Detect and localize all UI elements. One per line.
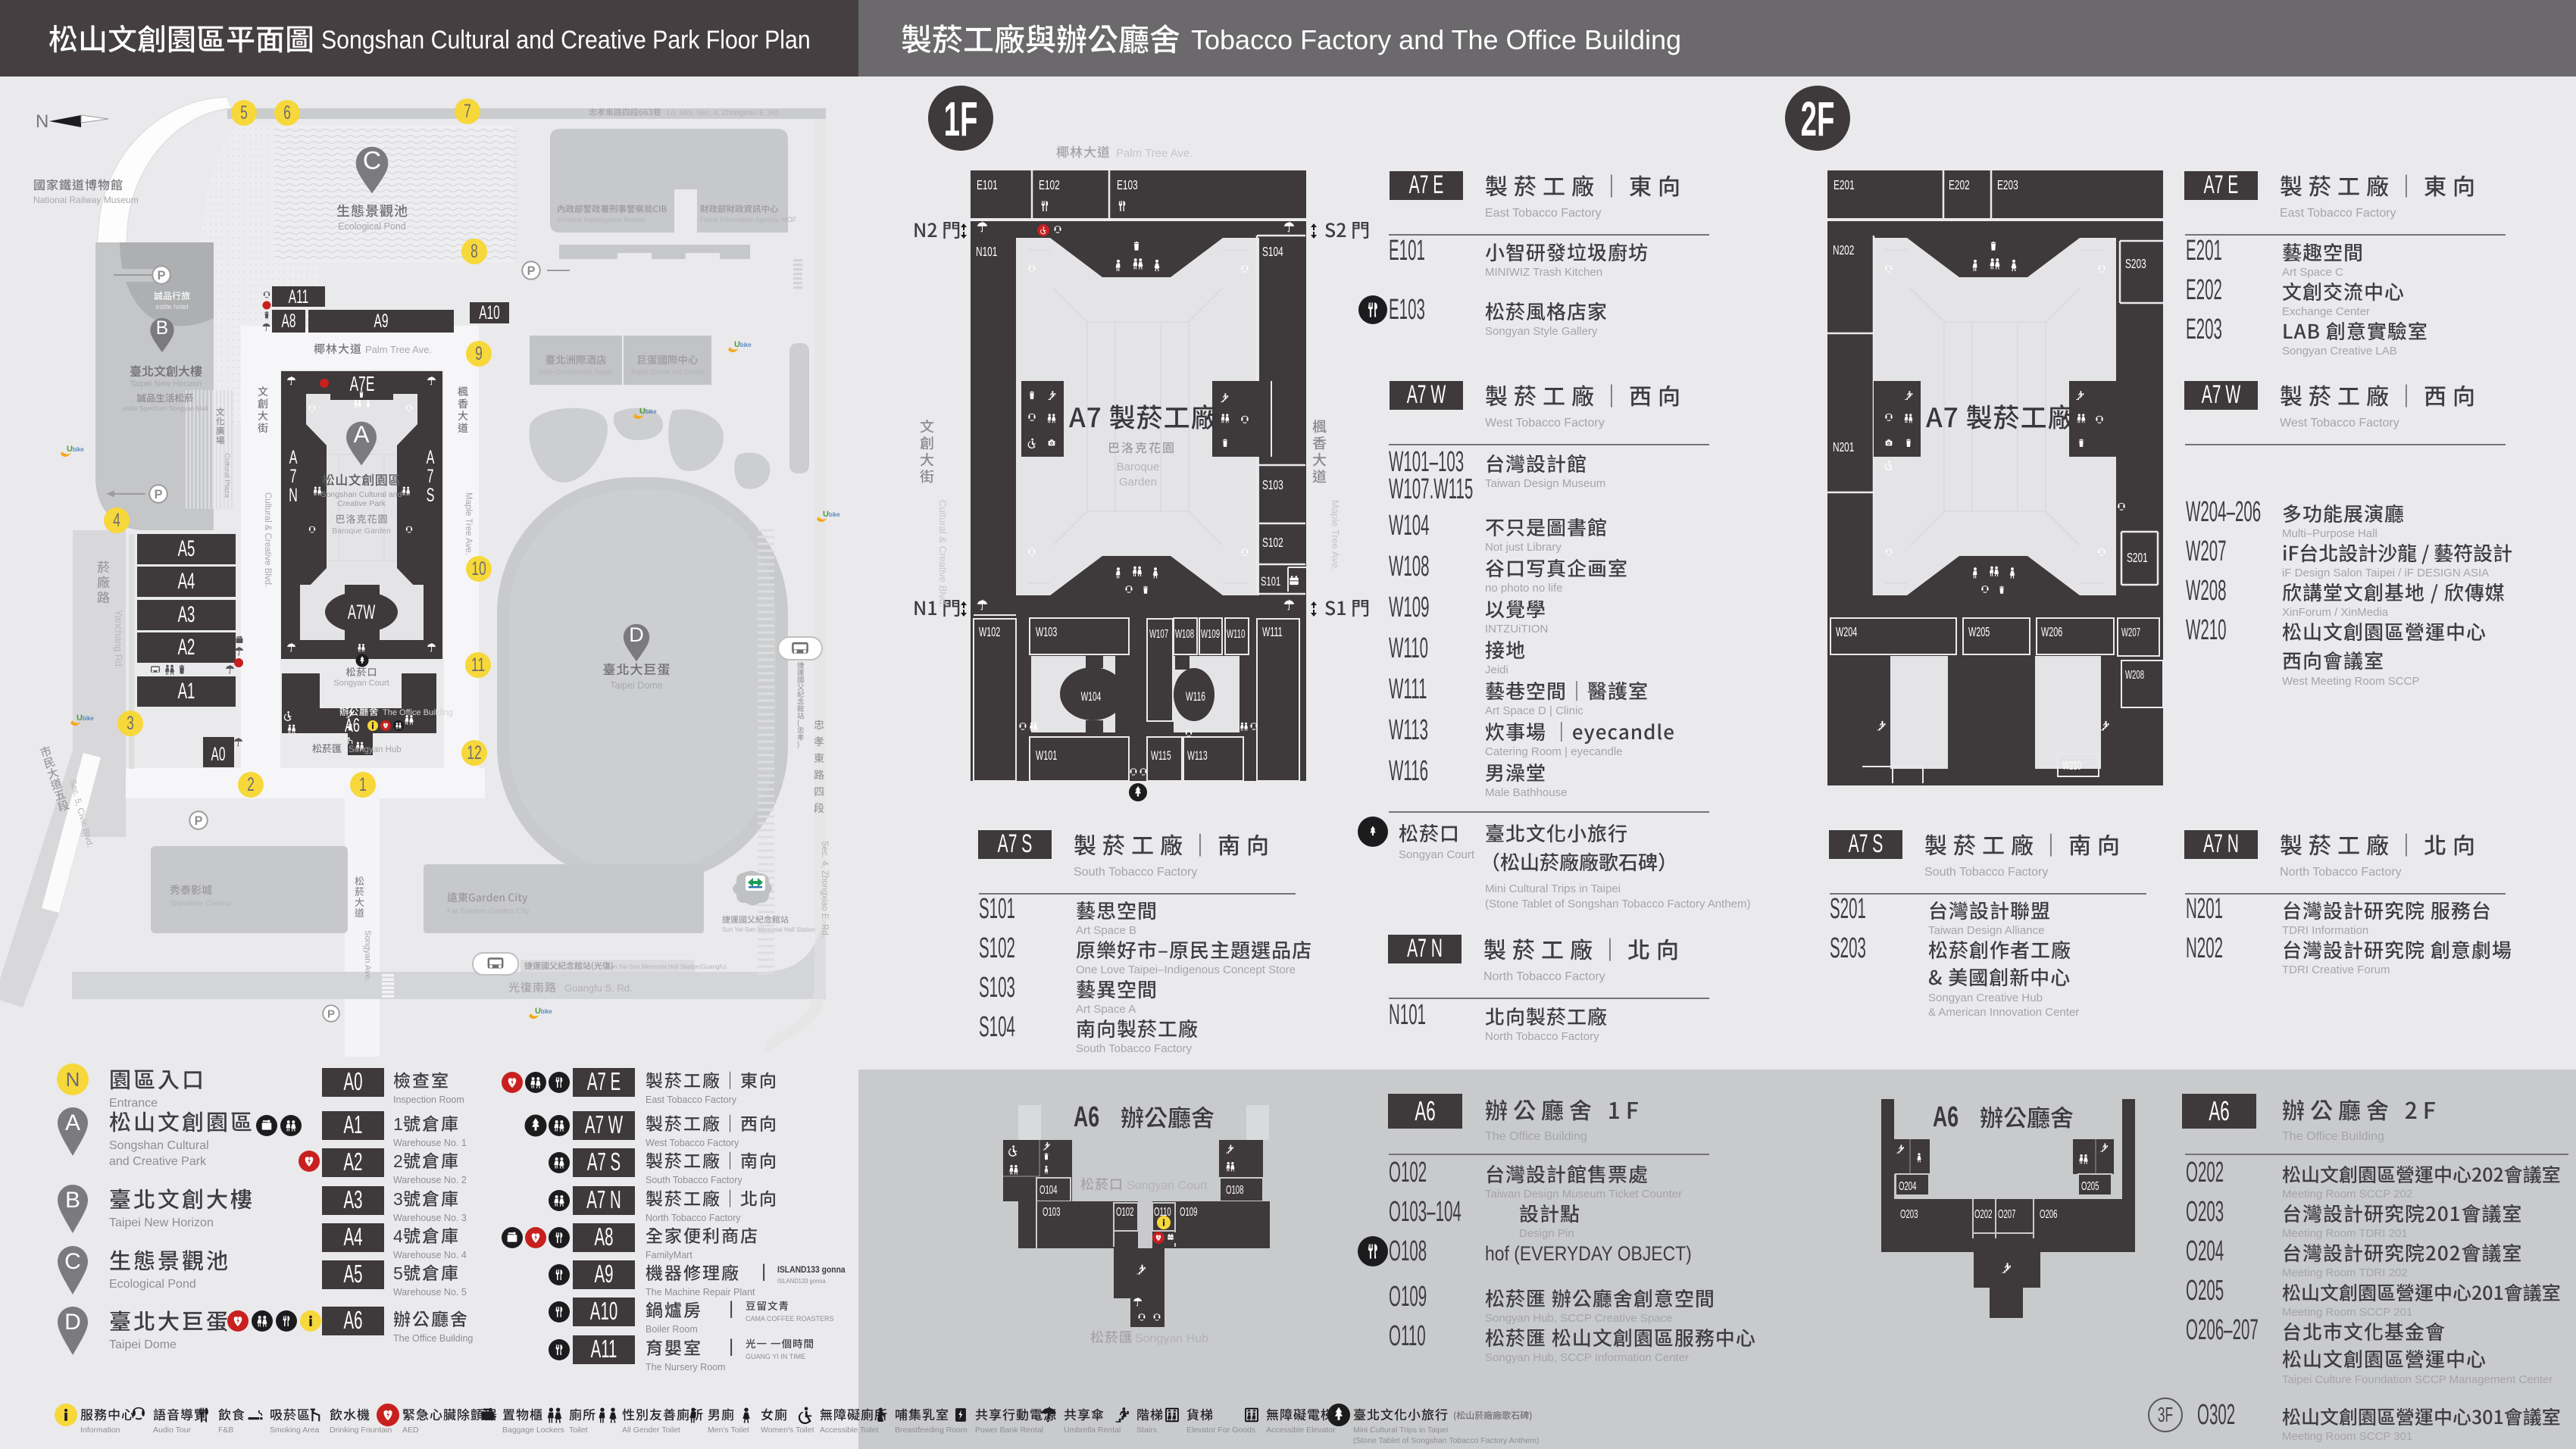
svg-text:Accessible Toilet: Accessible Toilet	[820, 1426, 879, 1435]
svg-text:S: S	[427, 486, 435, 506]
svg-text:A10: A10	[479, 302, 500, 323]
svg-text:West Tobacco Factory: West Tobacco Factory	[2280, 417, 2399, 429]
svg-text:E201: E201	[1834, 178, 1855, 193]
svg-text:2: 2	[393, 1151, 403, 1171]
svg-text:Women's Toilet: Women's Toilet	[761, 1426, 814, 1435]
svg-text:E103: E103	[1389, 293, 1425, 325]
svg-text:Breastfeeding Room: Breastfeeding Room	[895, 1426, 968, 1435]
svg-text:O205: O205	[2186, 1274, 2224, 1306]
svg-text:Drinking Fountain: Drinking Fountain	[330, 1426, 392, 1435]
svg-text:E201: E201	[2186, 234, 2222, 266]
svg-text:Warehouse No. 2: Warehouse No. 2	[393, 1175, 467, 1185]
svg-text:West Meeting Room SCCP: West Meeting Room SCCP	[2282, 675, 2419, 688]
svg-text:A7 S: A7 S	[587, 1148, 621, 1176]
svg-text:Warehouse No. 3: Warehouse No. 3	[393, 1213, 467, 1223]
svg-text:A3: A3	[343, 1185, 362, 1213]
svg-text:N101: N101	[976, 245, 997, 260]
svg-text:3: 3	[127, 712, 134, 734]
svg-text:W113: W113	[1187, 748, 1208, 762]
svg-text:A7 E: A7 E	[1409, 170, 1444, 198]
svg-text:W208: W208	[2125, 667, 2144, 681]
svg-text:F&B: F&B	[218, 1426, 233, 1435]
svg-text:A11: A11	[591, 1335, 617, 1363]
svg-text:Taiwan Design Alliance: Taiwan Design Alliance	[1928, 924, 2044, 937]
svg-text:A7 N: A7 N	[1407, 933, 1443, 962]
svg-text:N: N	[289, 486, 298, 506]
svg-text:Songyan Hub, SCCP Creative Spa: Songyan Hub, SCCP Creative Space	[1485, 1312, 1672, 1325]
svg-text:Taipei New Horizon: Taipei New Horizon	[109, 1216, 214, 1229]
svg-text:hof (EVERYDAY OBJECT): hof (EVERYDAY OBJECT)	[1485, 1242, 1692, 1265]
svg-text:South Tobacco Factory: South Tobacco Factory	[1076, 1042, 1193, 1055]
svg-text:O205: O205	[2081, 1179, 2099, 1192]
svg-text:8: 8	[470, 240, 478, 262]
svg-text:A9: A9	[594, 1260, 613, 1288]
svg-text:Garden: Garden	[1119, 476, 1157, 489]
svg-text:Inspection Room: Inspection Room	[393, 1095, 464, 1105]
svg-text:1F: 1F	[944, 92, 978, 147]
svg-text:3F: 3F	[2158, 1403, 2173, 1426]
svg-text:W207: W207	[2121, 625, 2140, 639]
svg-text:W107.W115: W107.W115	[1389, 473, 1473, 504]
svg-text:Taipei Dome: Taipei Dome	[610, 680, 663, 691]
svg-text:A4: A4	[343, 1223, 362, 1251]
svg-text:Sec. 4, Zhongxiao E. Rd.: Sec. 4, Zhongxiao E. Rd.	[820, 841, 829, 938]
svg-text:Songyan Court: Songyan Court	[333, 679, 389, 688]
svg-text:W109: W109	[1201, 626, 1220, 640]
svg-text:Far Eastern Garden City: Far Eastern Garden City	[447, 907, 529, 916]
svg-text:Songyan Hub, SCCP Information: Songyan Hub, SCCP Information Center	[1485, 1351, 1689, 1364]
svg-text:A6: A6	[1074, 1100, 1099, 1132]
svg-text:W116: W116	[1186, 690, 1205, 704]
svg-text:North Tobacco Factory: North Tobacco Factory	[1483, 970, 1605, 983]
svg-text:A7 E: A7 E	[587, 1067, 621, 1095]
svg-text:North Tobacco Factory: North Tobacco Factory	[2280, 866, 2402, 879]
svg-text:S101: S101	[979, 892, 1015, 924]
svg-text:S201: S201	[1830, 892, 1866, 924]
svg-text:A: A	[427, 448, 436, 468]
svg-text:Songshan Cultural and: Songshan Cultural and	[321, 490, 402, 499]
svg-text:N: N	[66, 1068, 80, 1091]
svg-text:O203: O203	[1900, 1207, 1918, 1220]
svg-text:S104: S104	[979, 1010, 1015, 1042]
svg-text:N: N	[36, 111, 48, 132]
svg-text:Meeting Room TDRI 202: Meeting Room TDRI 202	[2282, 1266, 2408, 1279]
svg-text:S103: S103	[979, 971, 1015, 1003]
svg-text:Mini Cultural Trips in Taipei: Mini Cultural Trips in Taipei	[1353, 1426, 1448, 1435]
svg-text:E203: E203	[1997, 178, 2018, 193]
svg-text:E102: E102	[1039, 178, 1060, 193]
svg-text:ISLAND133 gonna: ISLAND133 gonna	[777, 1266, 846, 1276]
svg-text:CAMA COFFEE ROASTERS: CAMA COFFEE ROASTERS	[746, 1315, 834, 1323]
svg-text:W206: W206	[2041, 626, 2062, 640]
svg-text:A1: A1	[343, 1110, 362, 1138]
svg-text:W104: W104	[1389, 509, 1430, 541]
svg-text:A7W: A7W	[348, 601, 376, 623]
svg-text:Sec. 5, Civic Blvd.: Sec. 5, Civic Blvd.	[67, 779, 95, 849]
svg-text:2F: 2F	[1801, 92, 1835, 147]
svg-text:and Creative Park: and Creative Park	[109, 1155, 207, 1168]
svg-text:A6: A6	[345, 716, 360, 736]
svg-text:A6: A6	[343, 1306, 362, 1334]
svg-text:Smoking Area: Smoking Area	[270, 1426, 320, 1435]
svg-text:Boiler Room: Boiler Room	[646, 1324, 698, 1335]
svg-text:Meeting Room TDRI 201: Meeting Room TDRI 201	[2282, 1227, 2408, 1240]
svg-text:The Office Building: The Office Building	[393, 1333, 473, 1344]
svg-text:11: 11	[471, 654, 485, 676]
svg-text:O109: O109	[1389, 1280, 1427, 1312]
svg-text:MINIWIZ Trash Kitchen: MINIWIZ Trash Kitchen	[1485, 266, 1602, 279]
svg-text:Songshan Cultural: Songshan Cultural	[109, 1139, 209, 1152]
svg-text:W204: W204	[1836, 626, 1857, 640]
svg-text:A0: A0	[343, 1067, 362, 1095]
svg-text:W207: W207	[2186, 535, 2227, 567]
svg-text:Power Bank Rental: Power Bank Rental	[975, 1426, 1043, 1435]
svg-text:O206–207: O206–207	[2186, 1313, 2259, 1345]
svg-text:Taiwan Design Museum Ticket Co: Taiwan Design Museum Ticket Counter	[1485, 1188, 1682, 1201]
svg-text:Warehouse No. 1: Warehouse No. 1	[393, 1138, 467, 1148]
svg-text:Sun Yat-Sen Memorial Hall Stat: Sun Yat-Sen Memorial Hall Station(Guangf…	[606, 963, 727, 970]
svg-text:Fiscal Information Agency, MOF: Fiscal Information Agency, MOF	[700, 216, 797, 223]
svg-text:7: 7	[464, 100, 471, 122]
svg-text:Ln. 663, Sec. 4, Zhongxiao E.: Ln. 663, Sec. 4, Zhongxiao E. Rd.	[667, 109, 780, 117]
svg-text:A8: A8	[594, 1223, 613, 1251]
svg-text:FamilyMart: FamilyMart	[646, 1250, 692, 1260]
svg-text:A7E: A7E	[350, 372, 375, 395]
svg-text:North Tobacco Factory: North Tobacco Factory	[1485, 1030, 1599, 1043]
svg-text:5: 5	[393, 1263, 403, 1283]
svg-text:W115: W115	[1151, 748, 1171, 762]
svg-text:W111: W111	[1262, 626, 1283, 640]
svg-text:S203: S203	[2125, 257, 2146, 272]
svg-text:TDRI Creative Forum: TDRI Creative Forum	[2282, 963, 2390, 976]
svg-text:E101: E101	[977, 178, 998, 193]
svg-text:Ecological Pond: Ecological Pond	[109, 1278, 196, 1291]
svg-text:7: 7	[289, 467, 296, 487]
svg-text:W110: W110	[1389, 632, 1428, 664]
svg-text:4: 4	[113, 509, 120, 531]
svg-text:A7 S: A7 S	[998, 829, 1033, 857]
svg-text:The Office Building: The Office Building	[383, 708, 453, 717]
svg-text:W205: W205	[1968, 626, 1990, 640]
svg-text:The Office Building: The Office Building	[2282, 1130, 2384, 1143]
svg-text:Audio Tour: Audio Tour	[153, 1426, 192, 1435]
svg-text:W210: W210	[2062, 758, 2081, 772]
svg-text:1: 1	[359, 773, 367, 795]
svg-text:A3: A3	[178, 602, 195, 628]
svg-text:West Tobacco Factory: West Tobacco Factory	[1485, 417, 1605, 429]
svg-text:N202: N202	[1833, 243, 1854, 258]
svg-text:Men's Toilet: Men's Toilet	[708, 1426, 749, 1435]
svg-text:S201: S201	[2127, 551, 2148, 566]
svg-text:O109: O109	[1180, 1204, 1197, 1218]
svg-text:Warehouse No. 5: Warehouse No. 5	[393, 1287, 467, 1298]
svg-text:C: C	[64, 1249, 81, 1274]
svg-text:Songyan Ave.: Songyan Ave.	[363, 930, 372, 982]
svg-text:eslite Spectrum Songyan Mall: eslite Spectrum Songyan Mall	[123, 404, 208, 412]
svg-text:Catering Room | eyecandle: Catering Room | eyecandle	[1485, 745, 1623, 758]
svg-text:|: |	[729, 1298, 733, 1319]
svg-text:Tobacco Factory and The Office: Tobacco Factory and The Office Building	[1191, 24, 1681, 55]
svg-text:S103: S103	[1262, 478, 1283, 493]
svg-text:iF Design Salon Taipei / iF DE: iF Design Salon Taipei / iF DESIGN ASIA	[2282, 567, 2489, 579]
svg-text:Yanchang Rd.: Yanchang Rd.	[113, 610, 123, 669]
svg-text:S101: S101	[1261, 575, 1280, 589]
svg-text:Ecological Pond: Ecological Pond	[338, 221, 406, 232]
svg-text:Warehouse No. 4: Warehouse No. 4	[393, 1250, 467, 1260]
svg-text:N202: N202	[2186, 932, 2223, 963]
svg-text:The Nursery Room: The Nursery Room	[646, 1362, 726, 1372]
svg-text:O108: O108	[1389, 1235, 1427, 1266]
svg-text:Entrance: Entrance	[109, 1097, 158, 1110]
svg-text:C: C	[363, 147, 381, 175]
svg-text:Meeting Room SCCP 202: Meeting Room SCCP 202	[2282, 1188, 2412, 1201]
svg-text:Umbrella Rental: Umbrella Rental	[1064, 1426, 1121, 1435]
svg-text:N101: N101	[1389, 998, 1426, 1030]
svg-text:W116: W116	[1389, 754, 1428, 786]
svg-text:D: D	[64, 1310, 81, 1335]
svg-text:Songyan Court: Songyan Court	[1127, 1179, 1208, 1192]
svg-text:eslite hotel: eslite hotel	[155, 303, 188, 311]
svg-text:One Love Taipei–Indigenous Con: One Love Taipei–Indigenous Concept Store	[1076, 963, 1296, 976]
svg-text:O102: O102	[1389, 1156, 1427, 1188]
svg-text:S102: S102	[979, 932, 1015, 963]
svg-text:O207: O207	[1998, 1207, 2015, 1220]
svg-text:A7 W: A7 W	[1407, 379, 1446, 408]
svg-text:O302: O302	[2197, 1398, 2235, 1430]
svg-text:W108: W108	[1175, 626, 1194, 640]
svg-text:A6: A6	[1933, 1100, 1959, 1132]
svg-text:A1: A1	[178, 679, 195, 704]
svg-text:East Tobacco Factory: East Tobacco Factory	[646, 1095, 737, 1105]
svg-text:A5: A5	[178, 536, 195, 562]
svg-text:W110: W110	[1227, 626, 1245, 640]
svg-text:Palm Tree Ave.: Palm Tree Ave.	[1116, 147, 1193, 160]
svg-text:Art Space D | Clinic: Art Space D | Clinic	[1485, 704, 1583, 717]
svg-text:7: 7	[427, 467, 433, 487]
svg-text:Art Space B: Art Space B	[1076, 924, 1136, 937]
svg-text:East Tobacco Factory: East Tobacco Factory	[2280, 207, 2396, 220]
svg-text:Taipei Culture Foundation SCCP: Taipei Culture Foundation SCCP Managemen…	[2282, 1373, 2553, 1386]
svg-text:6: 6	[283, 101, 291, 123]
svg-text:A7 N: A7 N	[586, 1185, 621, 1213]
svg-text:GUANG YI IN TIME: GUANG YI IN TIME	[746, 1353, 805, 1360]
svg-text:A4: A4	[178, 569, 195, 595]
svg-text:O204: O204	[2186, 1235, 2224, 1266]
svg-text:E202: E202	[1949, 178, 1970, 193]
svg-text:O103–104: O103–104	[1389, 1195, 1462, 1227]
svg-text:S104: S104	[1262, 245, 1283, 260]
svg-text:S102: S102	[1262, 536, 1283, 551]
svg-text:A10: A10	[590, 1297, 617, 1325]
svg-text:A6: A6	[2209, 1097, 2229, 1127]
svg-text:Maple Tree Ave.: Maple Tree Ave.	[1330, 500, 1341, 571]
svg-text:W208: W208	[2186, 574, 2227, 606]
svg-text:(Stone Tablet of Songshan Toba: (Stone Tablet of Songshan Tobacco Factor…	[1353, 1436, 1539, 1445]
svg-text:Baggage Lockers: Baggage Lockers	[502, 1426, 564, 1435]
svg-text:E203: E203	[2186, 313, 2222, 345]
svg-text:4: 4	[393, 1226, 403, 1246]
svg-text:E202: E202	[2186, 273, 2222, 305]
svg-text:O204: O204	[1899, 1179, 1916, 1192]
svg-text:Inter-Continental Taipei: Inter-Continental Taipei	[539, 368, 613, 376]
svg-text:W107: W107	[1149, 626, 1168, 640]
svg-text:The Machine Repair Plant: The Machine Repair Plant	[646, 1287, 755, 1298]
svg-text:Songshan Cultural and Creative: Songshan Cultural and Creative Park Floo…	[321, 25, 811, 54]
svg-text:Cultural Plaza: Cultural Plaza	[223, 453, 231, 498]
svg-text:N201: N201	[2186, 892, 2223, 924]
svg-text:East Tobacco Factory: East Tobacco Factory	[1485, 207, 1602, 220]
svg-text:W101: W101	[1036, 749, 1057, 764]
svg-text:A2: A2	[343, 1148, 362, 1176]
svg-text:A7 S: A7 S	[1849, 829, 1884, 857]
svg-text:A7 W: A7 W	[2202, 379, 2241, 408]
svg-text:XinForum / XinMedia: XinForum / XinMedia	[2282, 606, 2389, 619]
svg-text:(Stone Tablet of Songshan Toba: (Stone Tablet of Songshan Tobacco Factor…	[1485, 898, 1751, 910]
svg-text:TDRI Information: TDRI Information	[2282, 924, 2368, 937]
svg-text:Songyan Hub: Songyan Hub	[349, 745, 402, 754]
svg-text:Criminal Investigation Bureau: Criminal Investigation Bureau	[557, 216, 646, 223]
svg-text:A6: A6	[1415, 1097, 1435, 1127]
svg-text:The Office Building: The Office Building	[1485, 1130, 1587, 1143]
svg-text:A9: A9	[374, 311, 389, 332]
svg-text:Design Pin: Design Pin	[1519, 1227, 1574, 1240]
svg-text:W108: W108	[1389, 550, 1430, 582]
svg-text:Stairs: Stairs	[1136, 1426, 1157, 1435]
svg-text:& American Innovation Center: & American Innovation Center	[1928, 1006, 2079, 1019]
svg-text:W111: W111	[1389, 673, 1427, 704]
svg-text:W113: W113	[1389, 714, 1428, 745]
svg-text:12: 12	[467, 742, 481, 764]
svg-text:Sun Yat-Sen Memorial Hall Stat: Sun Yat-Sen Memorial Hall Station	[722, 926, 815, 933]
svg-text:O110: O110	[1154, 1204, 1171, 1218]
svg-text:A5: A5	[343, 1260, 362, 1288]
svg-text:Taipei Dome: Taipei Dome	[109, 1338, 177, 1351]
svg-text:Taiwan Design Museum: Taiwan Design Museum	[1485, 477, 1605, 490]
svg-text:B: B	[65, 1188, 80, 1213]
svg-text:Mini Cultural Trips in Taipei: Mini Cultural Trips in Taipei	[1485, 882, 1621, 895]
svg-text:Multi–Purpose Hall: Multi–Purpose Hall	[2282, 527, 2377, 540]
svg-text:A: A	[353, 420, 369, 448]
svg-text:O206: O206	[2040, 1207, 2057, 1220]
svg-text:2: 2	[247, 773, 255, 795]
svg-text:B: B	[156, 318, 168, 339]
svg-text:Baroque Garden: Baroque Garden	[332, 526, 391, 536]
svg-text:Creative Park: Creative Park	[337, 499, 386, 508]
svg-text:Songyan Creative Hub: Songyan Creative Hub	[1928, 992, 2043, 1004]
svg-text:AED: AED	[402, 1426, 419, 1435]
svg-text:A11: A11	[289, 286, 308, 308]
svg-text:W103: W103	[1036, 626, 1057, 640]
svg-text:Accessible Elevator: Accessible Elevator	[1266, 1426, 1336, 1435]
svg-text:N201: N201	[1833, 440, 1854, 455]
svg-text:3: 3	[393, 1189, 403, 1209]
svg-text:S203: S203	[1830, 932, 1866, 963]
svg-text:W109: W109	[1389, 591, 1430, 623]
svg-text:D: D	[629, 623, 644, 646]
svg-text:North Tobacco Factory: North Tobacco Factory	[646, 1213, 741, 1223]
svg-text:O102: O102	[1116, 1204, 1133, 1218]
svg-text:Songyan Hub: Songyan Hub	[1135, 1332, 1208, 1345]
svg-text:Maple Tree Ave.: Maple Tree Ave.	[464, 492, 473, 555]
svg-text:National Railway Museum: National Railway Museum	[33, 195, 139, 205]
svg-text:Guangfu S. Rd.: Guangfu S. Rd.	[564, 982, 633, 994]
svg-text:A7 N: A7 N	[2203, 829, 2239, 857]
svg-text:South Tobacco Factory: South Tobacco Factory	[646, 1175, 742, 1185]
svg-text:no photo no life: no photo no life	[1485, 582, 1563, 595]
svg-text:O202: O202	[1974, 1207, 1992, 1220]
svg-text:O203: O203	[2186, 1195, 2224, 1227]
svg-text:Elevator For Goods: Elevator For Goods	[1186, 1426, 1255, 1435]
svg-text:A: A	[289, 448, 299, 468]
svg-text:O103: O103	[1043, 1204, 1060, 1218]
svg-text:INTZUiTION: INTZUiTION	[1485, 623, 1548, 635]
svg-text:W102: W102	[979, 626, 1000, 640]
svg-text:A2: A2	[178, 635, 195, 660]
svg-text:|: |	[761, 1261, 766, 1282]
svg-text:Not just Library: Not just Library	[1485, 541, 1562, 554]
svg-text:1: 1	[393, 1114, 403, 1134]
svg-text:5: 5	[240, 101, 248, 123]
svg-text:10: 10	[471, 557, 486, 579]
svg-text:Taipei New Horizon: Taipei New Horizon	[130, 379, 202, 389]
svg-text:Songyan Style Gallery: Songyan Style Gallery	[1485, 325, 1598, 338]
svg-text:Showtime Cinema: Showtime Cinema	[170, 900, 232, 908]
svg-text:E101: E101	[1389, 234, 1425, 266]
svg-text:A: A	[65, 1110, 80, 1135]
svg-text:ISLAND133 gonna: ISLAND133 gonna	[777, 1278, 826, 1285]
svg-text:Meeting Room SCCP 301: Meeting Room SCCP 301	[2282, 1430, 2412, 1443]
svg-text:Exchange Center: Exchange Center	[2282, 305, 2370, 318]
svg-text:Taipei Dome Intl Center: Taipei Dome Intl Center	[630, 368, 705, 376]
svg-text:|: |	[729, 1336, 733, 1357]
svg-text:All Gender Toilet: All Gender Toilet	[622, 1426, 680, 1435]
svg-text:W104: W104	[1081, 690, 1102, 704]
svg-text:Meeting Room SCCP 201: Meeting Room SCCP 201	[2282, 1306, 2412, 1319]
svg-text:O110: O110	[1389, 1319, 1426, 1351]
svg-text:Information: Information	[80, 1426, 120, 1435]
svg-text:W210: W210	[2186, 614, 2227, 645]
svg-text:Songyan Court: Songyan Court	[1399, 848, 1475, 861]
svg-text:Art Space A: Art Space A	[1076, 1003, 1136, 1016]
svg-text:W204–206: W204–206	[2186, 495, 2261, 527]
svg-text:A8: A8	[282, 311, 296, 332]
svg-text:Songyan Creative LAB: Songyan Creative LAB	[2282, 345, 2397, 358]
svg-text:O108: O108	[1226, 1182, 1243, 1196]
svg-text:Palm Tree Ave.: Palm Tree Ave.	[365, 344, 432, 355]
svg-text:West Tobacco Factory: West Tobacco Factory	[646, 1138, 739, 1148]
svg-text:O104: O104	[1039, 1182, 1057, 1196]
svg-text:9: 9	[475, 342, 483, 364]
svg-text:A7 W: A7 W	[585, 1110, 623, 1138]
svg-text:South Tobacco Factory: South Tobacco Factory	[1924, 866, 2048, 879]
svg-text:O202: O202	[2186, 1156, 2224, 1188]
svg-text:Baroque: Baroque	[1117, 461, 1160, 473]
svg-text:A0: A0	[211, 744, 226, 765]
svg-text:Male Bathhouse: Male Bathhouse	[1485, 786, 1567, 799]
svg-text:Jeidi: Jeidi	[1485, 664, 1508, 676]
svg-text:South Tobacco Factory: South Tobacco Factory	[1074, 866, 1197, 879]
svg-text:A7 E: A7 E	[2204, 170, 2239, 198]
svg-text:E103: E103	[1117, 178, 1138, 193]
svg-text:Cultural & Creative Blvd.: Cultural & Creative Blvd.	[263, 492, 272, 587]
svg-text:Art Space C: Art Space C	[2282, 266, 2343, 279]
svg-text:Cultural & Creative Blvd.: Cultural & Creative Blvd.	[937, 500, 949, 607]
svg-text:Toilet: Toilet	[569, 1426, 588, 1435]
